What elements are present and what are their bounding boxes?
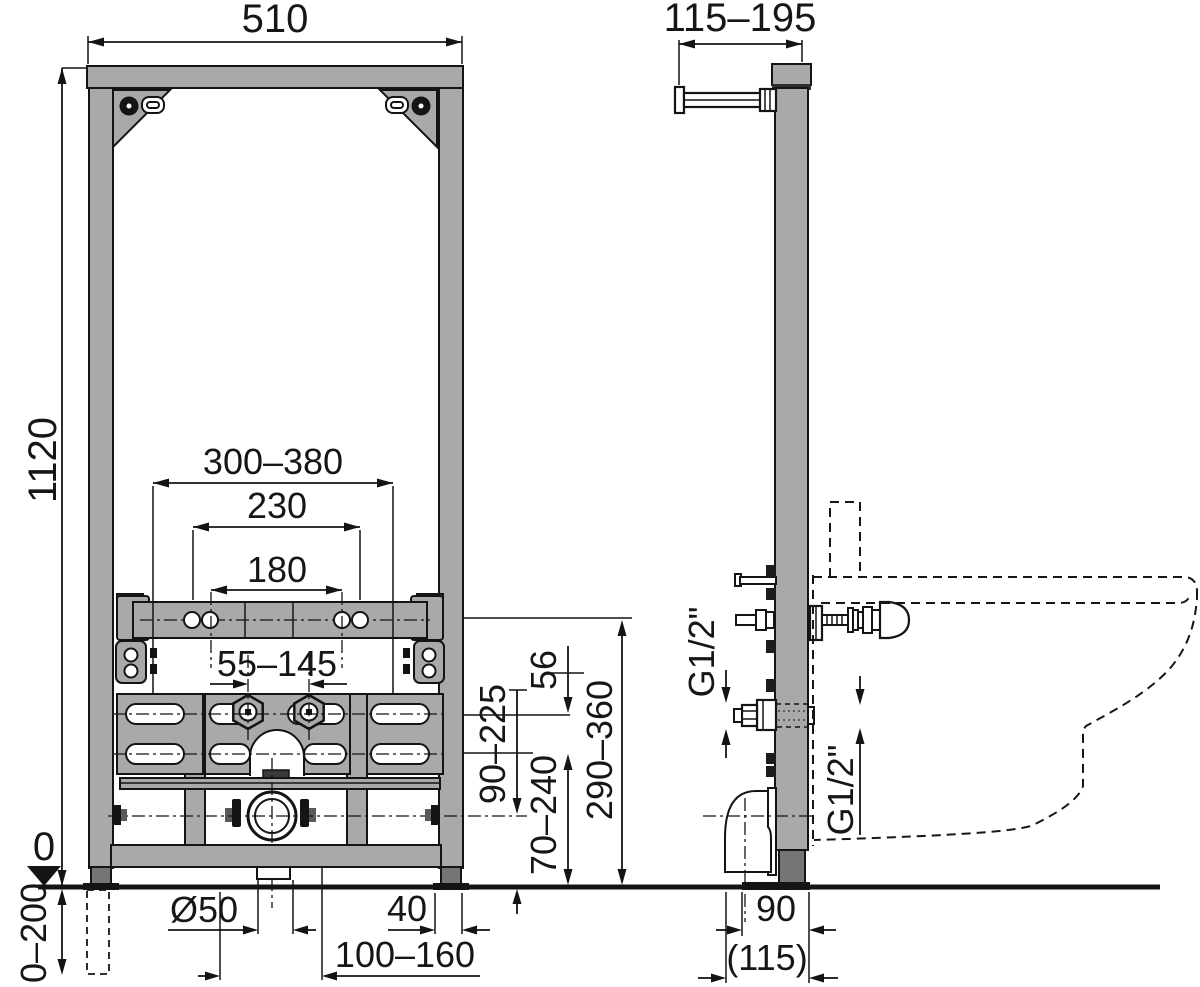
drain-outlet-tab — [257, 867, 290, 879]
slotted-plates — [117, 694, 443, 776]
floor-level-label: 0 — [33, 825, 55, 869]
cone-anchor — [880, 602, 909, 638]
technical-drawing: 510 1120 300–380 230 180 55–145 — [0, 0, 1200, 987]
dim-front-width: 510 — [88, 0, 462, 64]
bracket-right — [403, 641, 444, 683]
side-post-cap — [772, 64, 811, 85]
dim-front-height: 1120 — [21, 68, 87, 886]
front-top-bar — [87, 66, 463, 88]
faucet-hole-dashed — [830, 502, 860, 577]
bidet-outline-dashed — [813, 502, 1197, 846]
dim-70-240: 70–240 — [523, 754, 573, 885]
rail-hole — [184, 612, 200, 628]
side-clip — [431, 805, 439, 825]
thread-label-right: G1/2" — [820, 745, 861, 836]
dim-drain-offset-label: 100–160 — [335, 934, 475, 975]
dim-wall-distance-alt-label: (115) — [726, 937, 807, 978]
dim-90-225-label: 90–225 — [472, 684, 513, 804]
dim-holes-inner: 180 — [211, 549, 342, 595]
dim-holes-outer-label: 230 — [247, 485, 307, 526]
dim-water-range-label: 55–145 — [217, 643, 337, 684]
dim-90-225: 90–225 — [472, 684, 527, 914]
side-foot — [779, 850, 805, 883]
drawing-canvas: 510 1120 300–380 230 180 55–145 — [0, 0, 1200, 987]
dim-foot-width-label: 40 — [387, 888, 427, 929]
floor-datum: 0 — [27, 825, 61, 886]
dim-70-240-label: 70–240 — [523, 755, 564, 875]
thread-label-left: G1/2" — [681, 607, 722, 698]
front-left-post — [89, 86, 113, 868]
dim-rail-range-label: 300–380 — [203, 441, 343, 482]
side-view — [675, 64, 1197, 922]
dim-front-height-label: 1120 — [21, 417, 65, 503]
extended-foot-dashed — [87, 890, 109, 974]
wall-bracket — [675, 87, 776, 113]
dim-drain-diameter-label: Ø50 — [170, 889, 238, 930]
side-post — [775, 88, 808, 850]
rail-hole — [352, 612, 368, 628]
dim-290-360-label: 290–360 — [579, 680, 620, 820]
dim-depth-range-label: 115–195 — [664, 0, 817, 40]
dim-thread-right: G1/2" — [820, 676, 865, 835]
bottom-bar — [111, 845, 441, 867]
dim-290-360: 290–360 — [579, 620, 627, 885]
dim-wall-distance-alt: (115) — [698, 937, 838, 983]
bracket-left — [116, 641, 157, 683]
dim-wall-distance-label: 90 — [756, 888, 796, 929]
front-view-inner — [108, 592, 527, 908]
dim-holes-inner-label: 180 — [247, 549, 307, 590]
dim-thread-left: G1/2" — [681, 607, 731, 758]
dim-foot-width: 40 — [387, 888, 490, 935]
dim-front-width-label: 510 — [242, 0, 309, 41]
side-clip — [113, 805, 121, 825]
dim-leg-extension-label: 0–200 — [13, 883, 54, 983]
mounting-stud — [736, 602, 909, 640]
dim-water-range: 55–145 — [210, 643, 347, 689]
corner-gusset-left — [113, 90, 170, 147]
dim-leg-extension: 0–200 — [13, 883, 67, 983]
corner-gusset-right — [380, 90, 437, 147]
dim-56: 56 — [523, 646, 584, 713]
rail-hole — [202, 612, 218, 628]
dim-56-label: 56 — [523, 650, 564, 690]
